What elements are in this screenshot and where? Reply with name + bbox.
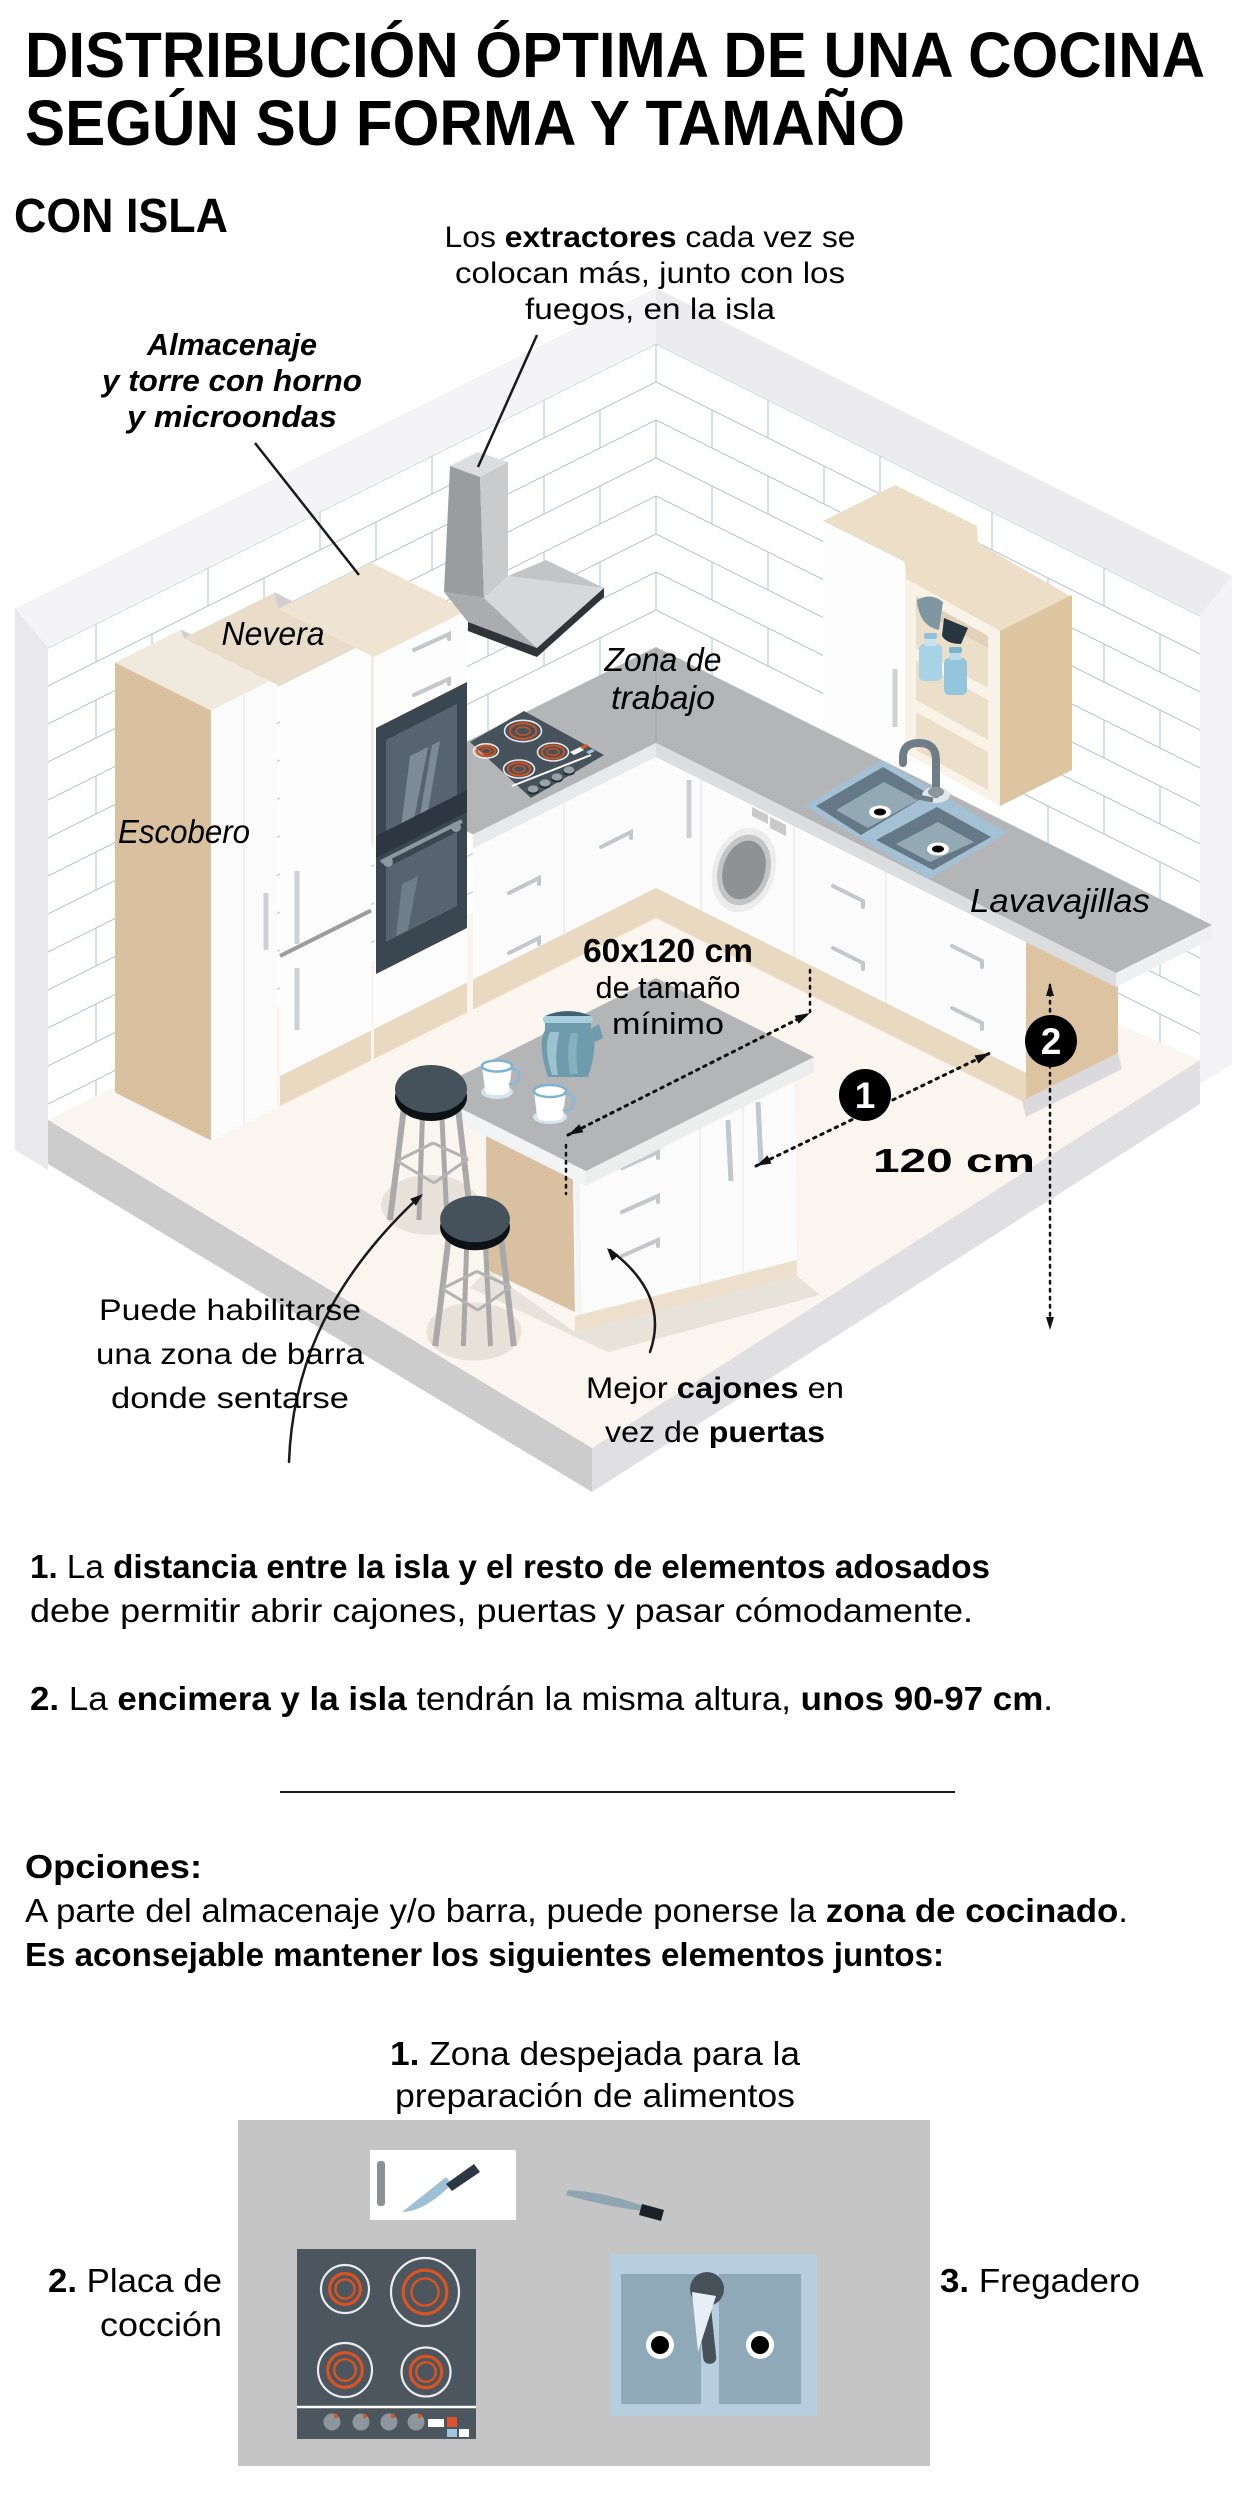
svg-text:Lavavajillas: Lavavajillas [970,882,1150,919]
svg-text:CON ISLA: CON ISLA [14,190,228,243]
svg-text:A parte del almacenaje y/o bar: A parte del almacenaje y/o barra, puede … [25,1892,1128,1929]
svg-text:cocción: cocción [100,2306,222,2343]
svg-text:Puede habilitarse: Puede habilitarse [99,1294,361,1327]
svg-text:DISTRIBUCIÓN ÓPTIMA DE UNA COC: DISTRIBUCIÓN ÓPTIMA DE UNA COCINA [25,19,1205,91]
svg-text:Zona de: Zona de [604,641,722,678]
svg-text:de tamaño: de tamaño [596,970,741,1005]
svg-text:120 cm: 120 cm [873,1142,1035,1179]
svg-text:y microondas: y microondas [125,399,337,434]
svg-text:Almacenaje: Almacenaje [146,327,317,362]
svg-text:2. La encimera y la isla tendr: 2. La encimera y la isla tendrán la mism… [30,1680,1053,1717]
svg-text:1. La distancia entre la isla: 1. La distancia entre la isla y el resto… [30,1548,990,1585]
svg-text:preparación de alimentos: preparación de alimentos [395,2077,795,2114]
svg-text:trabajo: trabajo [611,679,715,716]
svg-text:1: 1 [855,1075,876,1116]
svg-text:Los extractores cada vez se: Los extractores cada vez se [445,221,856,254]
svg-text:fuegos, en la isla: fuegos, en la isla [525,293,775,326]
svg-text:una zona de barra: una zona de barra [96,1338,364,1371]
svg-text:Opciones:: Opciones: [25,1848,202,1885]
svg-text:2. Placa de: 2. Placa de [48,2262,222,2299]
svg-text:SEGÚN SU FORMA Y TAMAÑO: SEGÚN SU FORMA Y TAMAÑO [25,87,905,159]
svg-text:colocan más, junto con los: colocan más, junto con los [455,257,845,290]
svg-text:debe permitir abrir cajones, p: debe permitir abrir cajones, puertas y p… [30,1592,973,1629]
svg-text:donde sentarse: donde sentarse [111,1382,349,1415]
svg-text:2: 2 [1041,1021,1062,1062]
svg-text:Nevera: Nevera [222,615,325,652]
svg-text:mínimo: mínimo [612,1006,724,1041]
svg-text:Escobero: Escobero [118,813,250,850]
svg-text:vez de puertas: vez de puertas [605,1416,825,1449]
svg-text:3. Fregadero: 3. Fregadero [940,2262,1140,2299]
svg-text:60x120 cm: 60x120 cm [583,932,753,969]
svg-text:Es aconsejable mantener los si: Es aconsejable mantener los siguientes e… [25,1936,944,1973]
svg-text:Mejor cajones en: Mejor cajones en [586,1372,844,1405]
svg-text:y torre con horno: y torre con horno [100,363,362,398]
svg-text:1. Zona despejada para la: 1. Zona despejada para la [390,2035,801,2072]
